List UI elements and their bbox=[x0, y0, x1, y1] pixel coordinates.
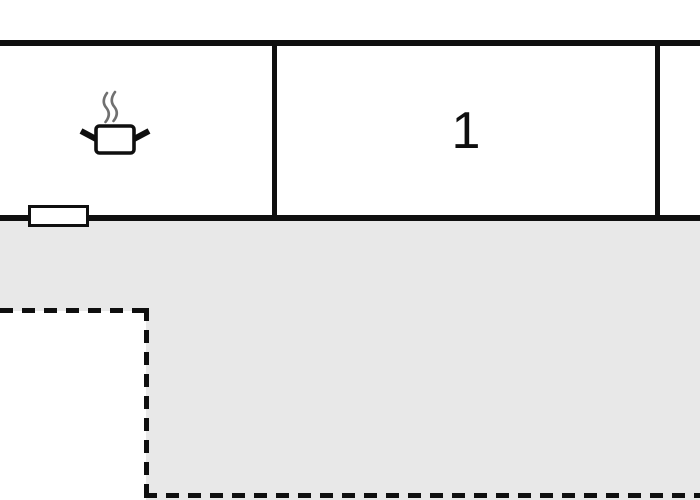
terrace-boundary-dashed-top bbox=[0, 308, 152, 313]
terrace-area bbox=[146, 311, 700, 500]
steam-icon bbox=[104, 93, 109, 122]
steam-icon bbox=[112, 92, 117, 121]
room-1-label: 1 bbox=[452, 105, 481, 157]
cooking-pot-icon bbox=[72, 88, 158, 158]
window-icon bbox=[28, 205, 89, 227]
wall-bottom bbox=[0, 215, 700, 221]
wall-room1-right bbox=[655, 46, 660, 215]
terrace-boundary-dashed-bottom bbox=[144, 493, 700, 498]
floorplan-canvas: 1 bbox=[0, 0, 700, 500]
terrace-boundary-dashed-side bbox=[144, 308, 149, 498]
room-1: 1 bbox=[277, 46, 655, 215]
terrace-area bbox=[0, 221, 700, 311]
